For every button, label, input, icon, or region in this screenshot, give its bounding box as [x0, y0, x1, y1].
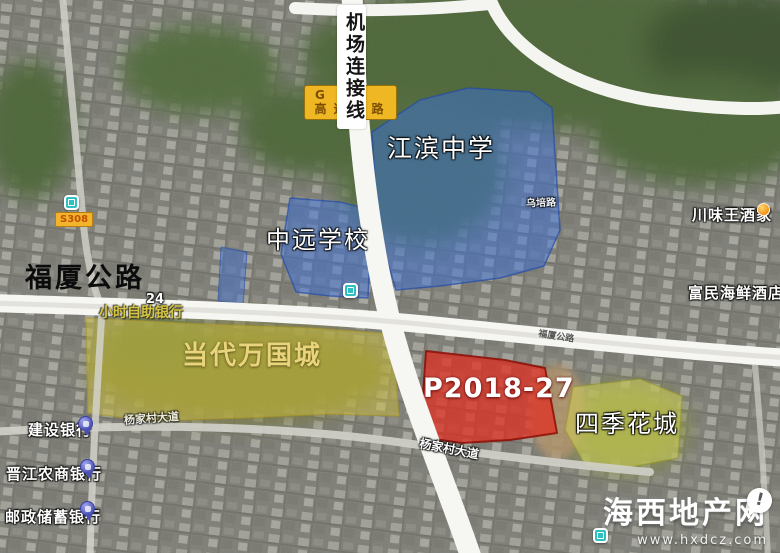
- road-label-fuxia-main: 福厦公路: [25, 264, 145, 294]
- watermark-url: www.hxdcz.com: [603, 533, 768, 548]
- bank-pin-icon[interactable]: [80, 501, 95, 516]
- satellite-map[interactable]: 机场连接线 G 高速公路 S308 江滨中学 中远学校 当代万国城 P2018-…: [0, 0, 780, 553]
- road-label-wupei: 乌培路: [526, 197, 556, 209]
- watermark: 海西地产网 www.hxdcz.com: [603, 488, 768, 548]
- zone-label-jiangbin-school: 江滨中学: [387, 135, 495, 163]
- atm-label-text: 小时自助银行: [99, 306, 183, 321]
- road-label-airport-link: 机场连接线: [337, 5, 366, 129]
- zone-label-zhongyuan-school: 中远学校: [266, 227, 370, 253]
- zone-blue-strip[interactable]: [218, 247, 247, 306]
- zone-label-parcel: P2018-27: [423, 374, 575, 404]
- zone-label-siji-huacheng: 四季花城: [575, 411, 679, 437]
- zone-jiangbin-school[interactable]: [372, 88, 560, 290]
- s308-road-sign: S308: [55, 212, 93, 227]
- road-top-connector: [295, 4, 490, 10]
- poi-label-fumin-hotel: 富民海鲜酒店: [688, 285, 780, 302]
- bank-pin-icon[interactable]: [80, 459, 95, 474]
- transit-station-icon[interactable]: [64, 195, 79, 210]
- transit-station-icon[interactable]: [343, 283, 358, 298]
- restaurant-icon[interactable]: [757, 203, 770, 216]
- zone-label-dangdai-wanguo: 当代万国城: [182, 342, 322, 371]
- bank-pin-icon[interactable]: [78, 416, 93, 431]
